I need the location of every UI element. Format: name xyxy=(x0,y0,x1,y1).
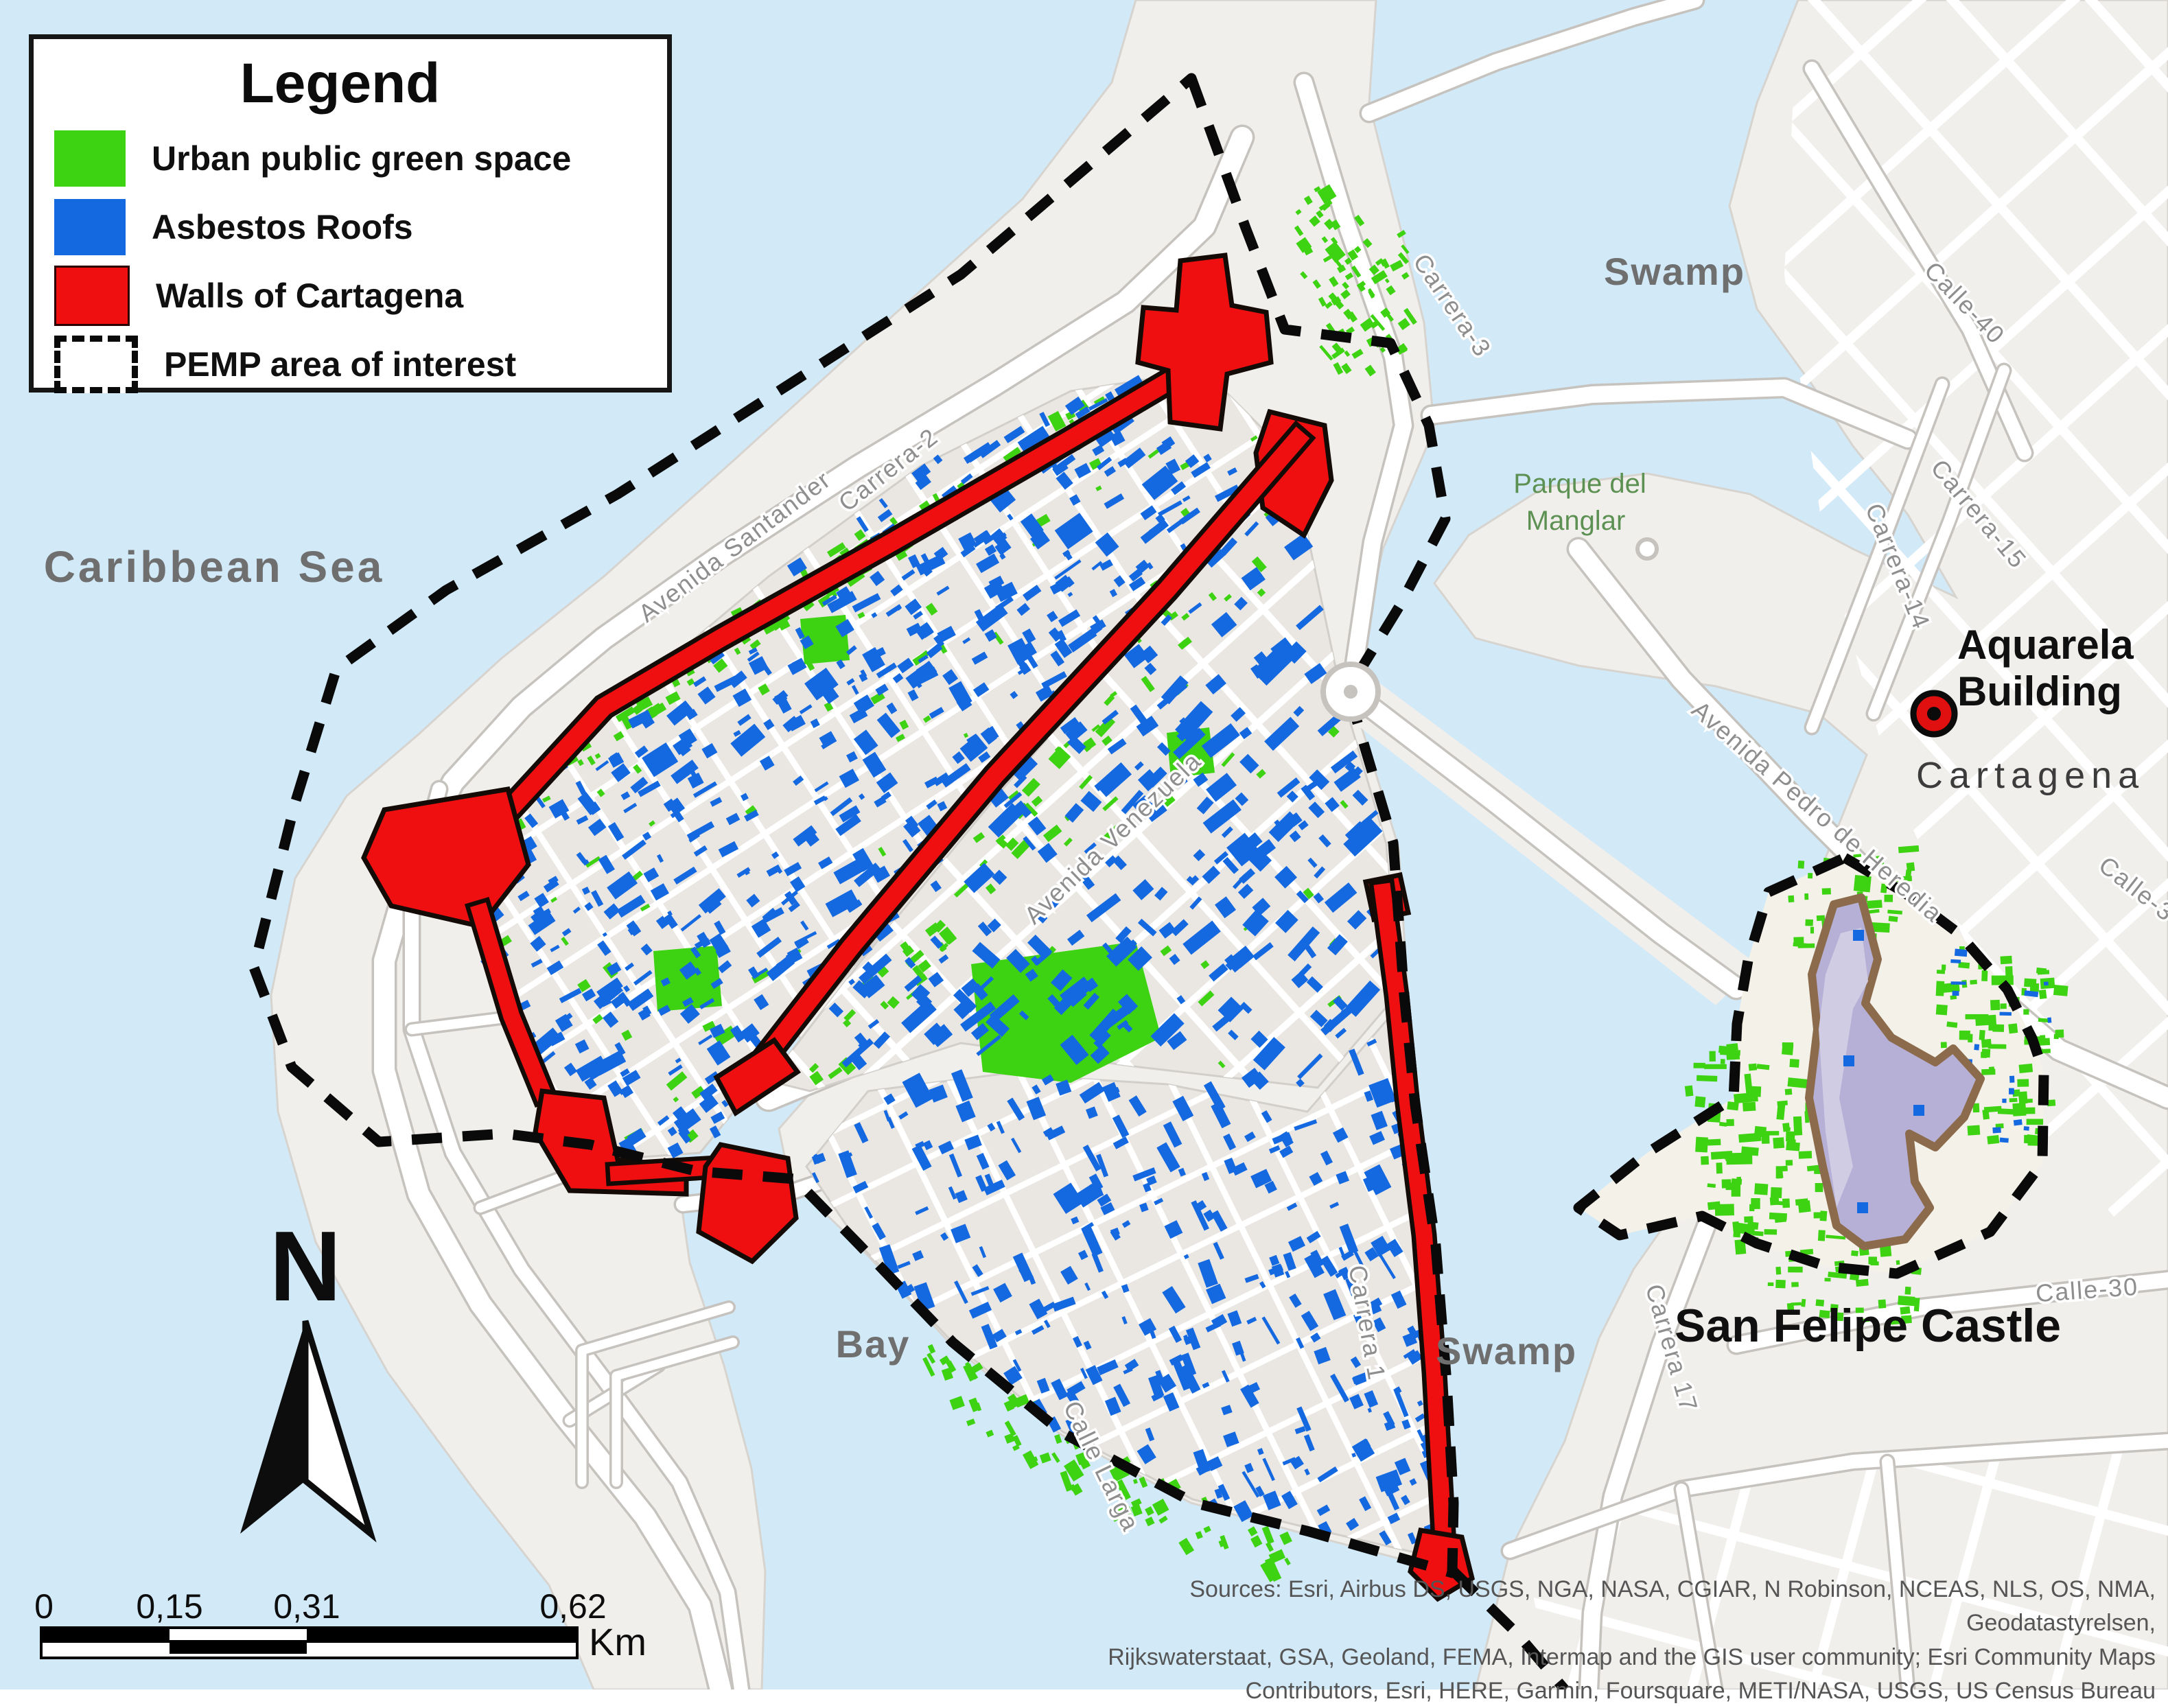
legend-item-label: Walls of Cartagena xyxy=(156,276,463,316)
map-label-parque-del-manglar-2: Manglar xyxy=(1526,506,1626,536)
legend-item-label: Urban public green space xyxy=(152,139,571,178)
legend-title: Legend xyxy=(54,51,626,116)
map-label-caribbean-sea: Caribbean Sea xyxy=(44,542,385,592)
north-arrow: N xyxy=(202,1208,408,1547)
attribution-text: Sources: Esri, Airbus DS, USGS, NGA, NAS… xyxy=(1071,1573,2156,1708)
scale-tick: 0,31 xyxy=(273,1587,340,1626)
map-label-swamp-south: Swamp xyxy=(1436,1329,1577,1372)
legend-item-blue: Asbestos Roofs xyxy=(54,198,667,256)
aquarela-building-marker xyxy=(1913,693,1955,734)
map-label-aquarela-1: Aquarela xyxy=(1957,622,2134,668)
scale-bar: 0 0,15 0,31 0,62 Km xyxy=(40,1587,740,1683)
blue-swatch-icon xyxy=(54,199,126,255)
green-swatch-icon xyxy=(54,130,126,187)
legend-item-pemp: PEMP area of interest xyxy=(54,336,667,393)
map-label-san-felipe-castle: San Felipe Castle xyxy=(1675,1300,2061,1352)
map-label-bay: Bay xyxy=(836,1322,911,1366)
scale-tick: 0 xyxy=(34,1587,54,1626)
attribution-line: Rijkswaterstaat, GSA, Geoland, FEMA, Int… xyxy=(1071,1641,2156,1674)
map-label-aquarela-2: Building xyxy=(1957,668,2122,714)
legend-panel: Legend Urban public green space Asbestos… xyxy=(29,34,672,393)
legend-item-red: Walls of Cartagena xyxy=(54,267,667,325)
map-figure: Caribbean SeaSwampSwampBayParque delMang… xyxy=(0,0,2168,1689)
north-arrow-right-wing xyxy=(305,1321,371,1534)
legend-item-green: Urban public green space xyxy=(54,130,667,187)
attribution-line: Contributors, Esri, HERE, Garmin, Foursq… xyxy=(1071,1674,2156,1708)
attribution-line: Sources: Esri, Airbus DS, USGS, NGA, NAS… xyxy=(1071,1573,2156,1641)
map-label-cartagena: Cartagena xyxy=(1916,755,2145,796)
legend-item-label: Asbestos Roofs xyxy=(152,207,413,247)
north-arrow-left-wing xyxy=(240,1321,305,1534)
legend-item-label: PEMP area of interest xyxy=(164,344,516,384)
scale-bar-graphic xyxy=(40,1626,579,1659)
scale-unit: Km xyxy=(589,1619,646,1664)
red-swatch-icon xyxy=(54,266,130,326)
dashed-outline-swatch-icon xyxy=(54,336,138,393)
map-label-parque-del-manglar-1: Parque del xyxy=(1513,469,1646,499)
scale-tick: 0,15 xyxy=(136,1587,202,1626)
map-label-swamp-north: Swamp xyxy=(1604,250,1745,293)
north-letter: N xyxy=(270,1210,342,1322)
